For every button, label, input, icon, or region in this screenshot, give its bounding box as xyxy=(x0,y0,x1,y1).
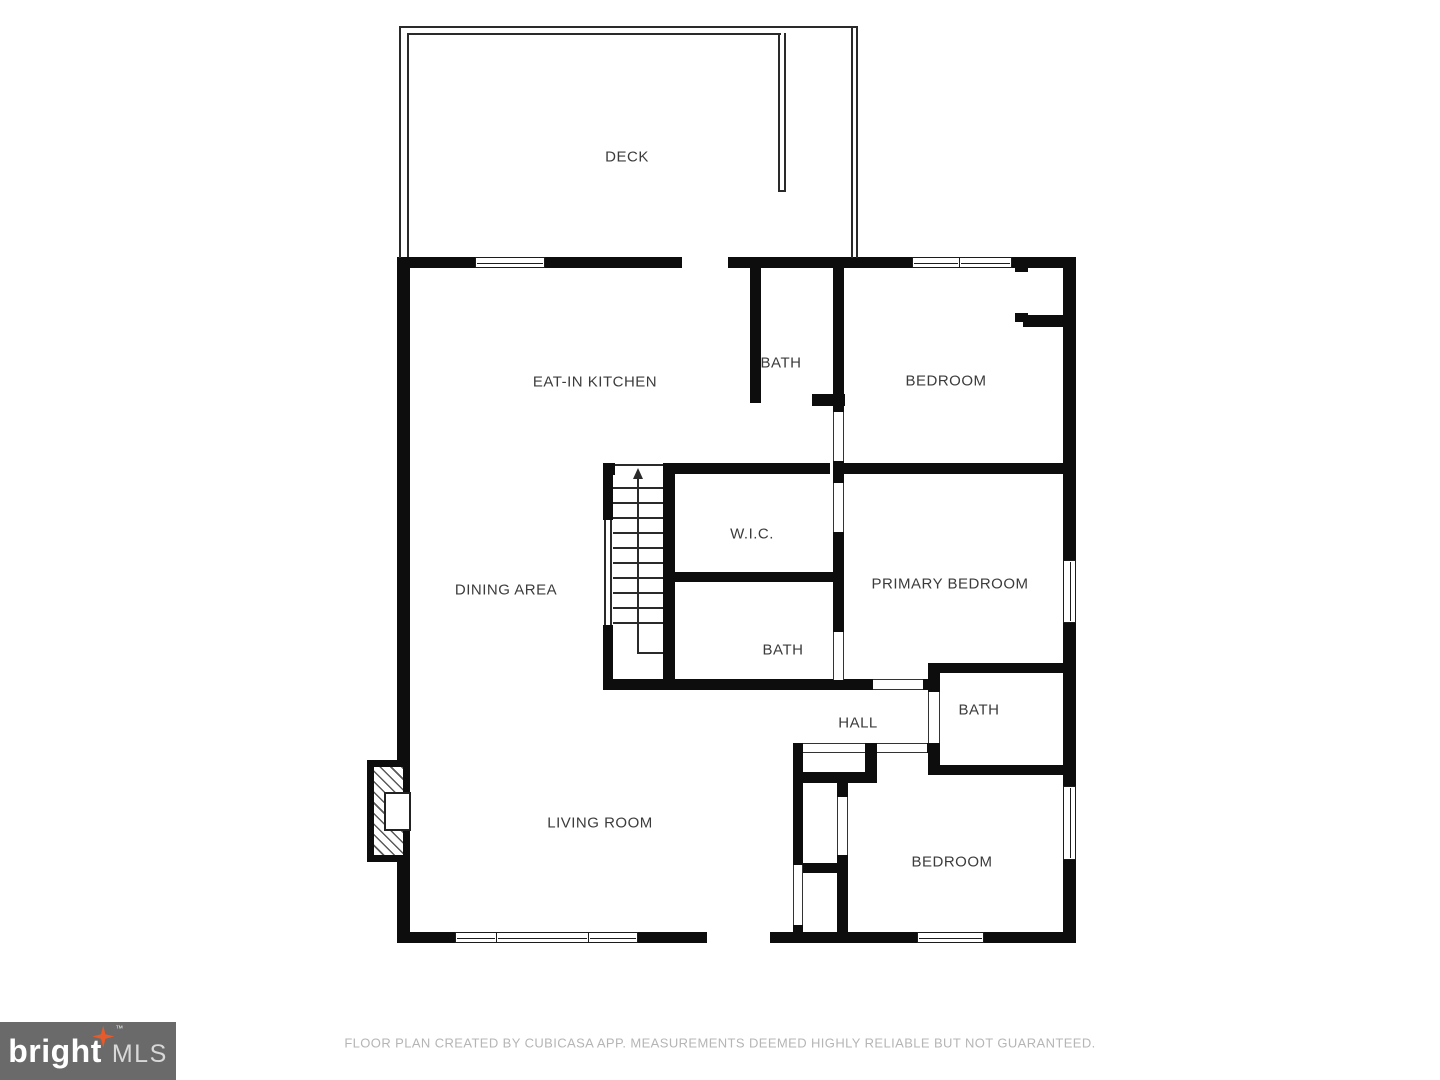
door-opening xyxy=(837,797,848,855)
wall-segment xyxy=(793,743,803,865)
wall-segment xyxy=(1063,623,1076,786)
door-opening xyxy=(793,865,803,925)
window xyxy=(588,932,638,943)
door-opening xyxy=(877,743,927,753)
wall-segment xyxy=(728,257,912,268)
deck-railing-line xyxy=(778,190,786,192)
wall-segment xyxy=(833,461,844,483)
wall-segment xyxy=(930,663,1063,673)
door-opening xyxy=(707,932,770,943)
wall-segment xyxy=(1063,257,1076,560)
footer-attribution-text: FLOOR PLAN CREATED BY CUBICASA APP. MEAS… xyxy=(344,1036,1095,1051)
stair-opening-line xyxy=(604,520,606,625)
wall-segment xyxy=(793,772,877,783)
deck-railing-line xyxy=(778,33,780,192)
wall-segment xyxy=(927,743,940,753)
wall-segment xyxy=(928,765,1063,775)
window xyxy=(917,932,984,943)
window xyxy=(455,932,497,943)
room-label-eat-in-kitchen: EAT-IN KITCHEN xyxy=(533,374,657,391)
room-label-living-room: LIVING ROOM xyxy=(547,815,653,832)
door-opening xyxy=(682,257,728,268)
stair-opening-line xyxy=(615,464,663,466)
wall-segment xyxy=(603,679,873,690)
wall-segment xyxy=(844,463,1065,474)
room-label-bath-middle: BATH xyxy=(763,642,804,659)
wall-segment xyxy=(397,932,455,943)
stair-arrow-line xyxy=(637,652,663,654)
wall-segment xyxy=(638,932,707,943)
stair-up-arrow-icon xyxy=(633,468,643,479)
door-opening xyxy=(873,679,923,690)
window xyxy=(912,257,960,268)
trademark-symbol: ™ xyxy=(115,1024,123,1033)
deck-railing-line xyxy=(407,33,409,257)
door-opening xyxy=(928,692,940,743)
deck-railing-line xyxy=(856,26,858,258)
room-label-bath-top: BATH xyxy=(761,355,802,372)
wall-segment xyxy=(793,925,803,943)
door-opening xyxy=(833,483,844,532)
room-label-bedroom-bottom: BEDROOM xyxy=(911,854,992,871)
room-label-deck: DECK xyxy=(605,149,649,166)
door-opening xyxy=(833,412,844,461)
wall-segment xyxy=(545,257,682,268)
stair-opening-line xyxy=(610,520,612,625)
wall-segment xyxy=(1015,265,1028,272)
wall-segment xyxy=(1063,860,1076,943)
stair-arrow-line xyxy=(637,477,639,653)
deck-railing-line xyxy=(407,33,781,35)
brightmls-wordmark: bright ™ MLS xyxy=(8,1033,168,1070)
wall-segment xyxy=(603,625,613,679)
wall-segment xyxy=(663,572,844,582)
wall-segment xyxy=(1023,315,1063,327)
deck-railing-line xyxy=(851,26,853,258)
room-label-dining-area: DINING AREA xyxy=(455,582,557,599)
deck-railing-line xyxy=(399,26,858,28)
window xyxy=(475,257,545,268)
door-opening xyxy=(833,632,844,680)
fireplace-firebox xyxy=(384,792,411,831)
window xyxy=(496,932,589,943)
window xyxy=(959,257,1012,268)
brightmls-logo-text: bright xyxy=(8,1033,102,1070)
window xyxy=(1063,560,1076,623)
wall-segment xyxy=(663,463,830,474)
deck-railing-line xyxy=(784,33,786,192)
wall-segment xyxy=(750,268,761,403)
brightmls-logo: bright ™ MLS xyxy=(0,1022,176,1080)
wall-segment xyxy=(837,773,848,797)
room-label-bedroom-top: BEDROOM xyxy=(905,373,986,390)
wall-segment xyxy=(984,932,1075,943)
deck-railing-line xyxy=(399,26,401,258)
window xyxy=(1063,786,1076,860)
room-label-primary-bedroom: PRIMARY BEDROOM xyxy=(872,576,1029,593)
floor-plan: DECK EAT-IN KITCHEN BATH BEDROOM W.I.C. … xyxy=(0,0,1440,1080)
wall-segment xyxy=(833,532,844,632)
door-opening xyxy=(803,743,865,753)
brightmls-logo-suffix: MLS xyxy=(112,1040,168,1069)
room-label-hall: HALL xyxy=(838,715,878,732)
room-label-bath-right: BATH xyxy=(959,702,1000,719)
wall-segment xyxy=(833,268,844,412)
room-label-wic: W.I.C. xyxy=(730,526,774,543)
wall-segment xyxy=(603,463,613,520)
